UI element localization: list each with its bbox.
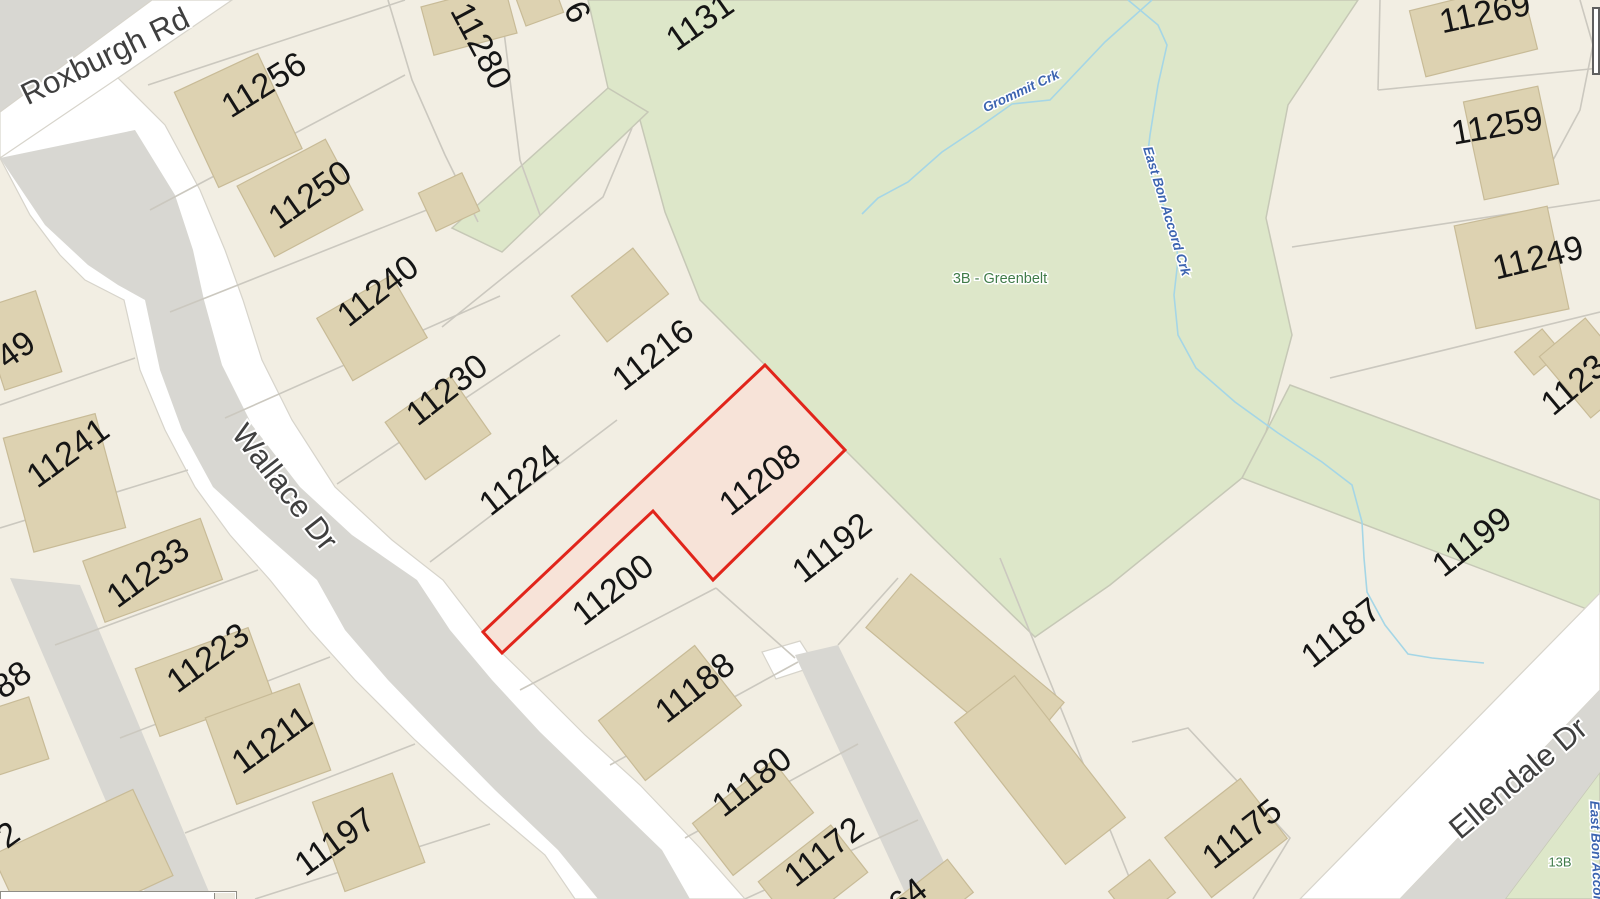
horizontal-scrollbar[interactable] — [0, 891, 237, 899]
map-canvas[interactable]: 11256 11250 11240 11230 11224 11216 1120… — [0, 0, 1600, 899]
map-viewport[interactable]: 11256 11250 11240 11230 11224 11216 1120… — [0, 0, 1600, 899]
zone-label-13b: 13B — [1548, 855, 1571, 870]
panel-edge-fragment[interactable] — [1592, 7, 1600, 75]
scrollbar-right-button[interactable] — [214, 893, 235, 899]
zone-label-greenbelt: 3B - Greenbelt — [953, 271, 1047, 287]
